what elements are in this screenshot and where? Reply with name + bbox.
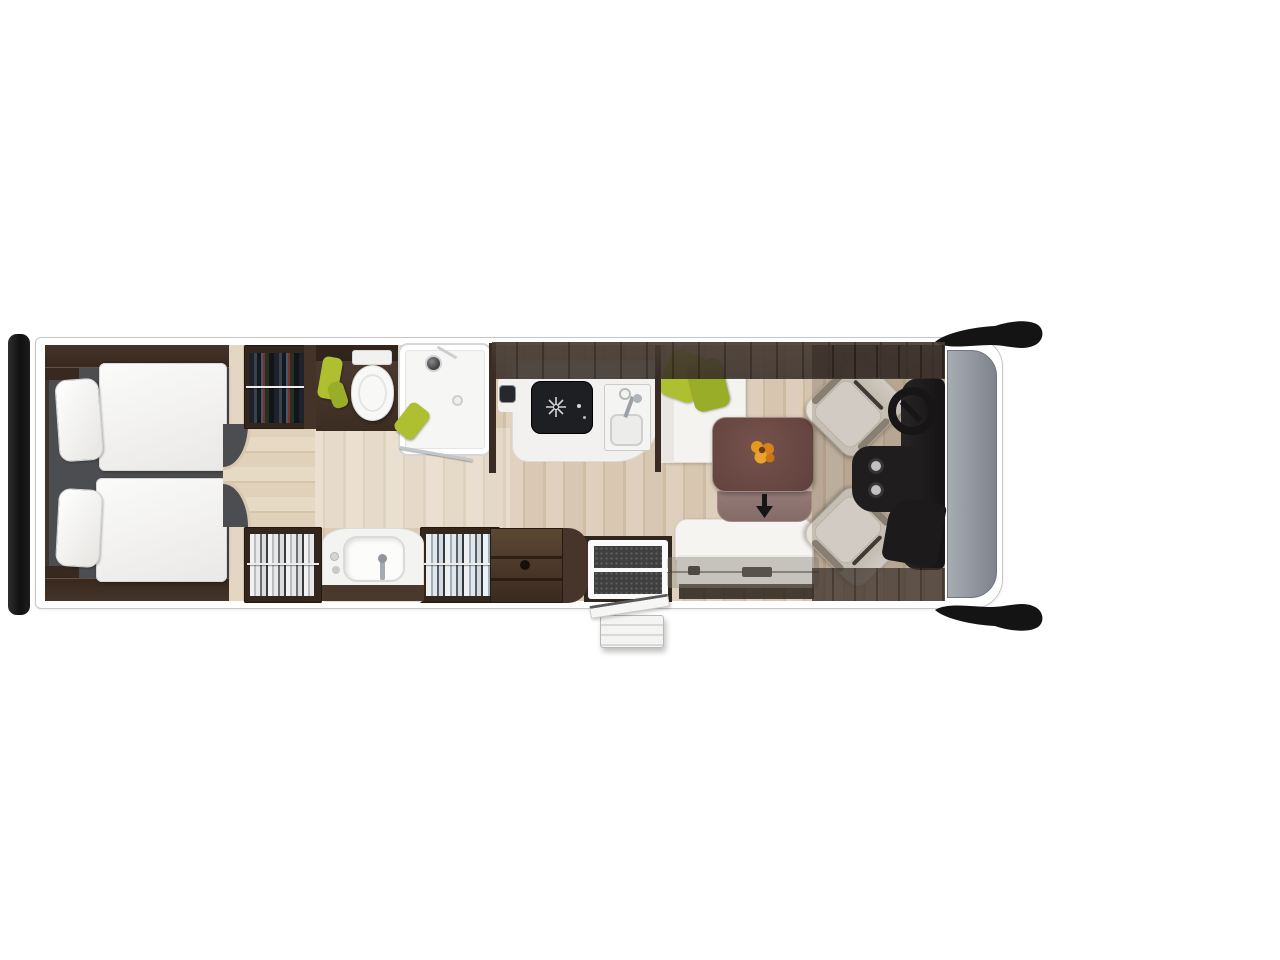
motorhome-floorplan [0, 0, 1280, 960]
entry-door-mat-divider [588, 568, 668, 572]
side-cabinet-shelf-lower [491, 578, 563, 581]
rear-bumper-bar [8, 334, 30, 615]
washbasin-accessory [330, 552, 339, 561]
toilet-seat-ring [358, 374, 387, 412]
washbasin-counter-edge [322, 585, 424, 601]
overhead-lockers [492, 342, 945, 379]
arrow-down-icon [756, 494, 773, 522]
kitchen-sink-bowl [610, 414, 643, 446]
twin-bed-bottom [96, 478, 227, 582]
toilet-cistern [352, 350, 392, 365]
kitchen-faucet-head [633, 394, 642, 403]
hob-knob [577, 404, 581, 408]
wardrobe-top-side-panel [304, 345, 316, 429]
pillow-top-bed [54, 378, 104, 463]
windshield [947, 350, 997, 598]
flower-bouquet [746, 437, 778, 471]
seatbelt-buckle-right [742, 567, 772, 577]
exterior-folding-step [600, 615, 664, 648]
hanging-clothes-top [249, 353, 305, 423]
side-cabinet-rounded-end [562, 528, 588, 603]
seatbelt-buckle-left [688, 566, 700, 575]
shower-head [425, 355, 442, 372]
side-mirror-top [933, 317, 1045, 354]
kitchen-appliance [499, 385, 516, 403]
wardrobe-rail-top [246, 386, 310, 388]
three-burner-hob [531, 381, 593, 434]
side-mirror-bottom [933, 598, 1045, 635]
wardrobe-rail-bottom-left [247, 563, 319, 565]
washbasin-bowl [343, 536, 405, 582]
pillow-bottom-bed [55, 488, 103, 568]
bedroom-trim-step-bottom [45, 566, 79, 578]
hanging-clothes-bottom-right [426, 534, 492, 596]
washbasin-accessory-small [332, 566, 340, 574]
shower-drain [452, 395, 463, 406]
hob-burner-icon [543, 394, 569, 420]
twin-bed-top [99, 363, 227, 471]
cupholder-bottom [868, 482, 884, 498]
side-cabinet-shelf [491, 556, 563, 559]
wardrobe-rail-bottom-right [423, 563, 497, 565]
side-cabinet-knob [520, 560, 530, 570]
steering-wheel [888, 387, 936, 435]
cupholder-top [868, 458, 884, 474]
hanging-clothes-bottom-left [250, 534, 314, 596]
hob-knob-small [583, 416, 586, 419]
washbasin-faucet-head [378, 554, 387, 563]
